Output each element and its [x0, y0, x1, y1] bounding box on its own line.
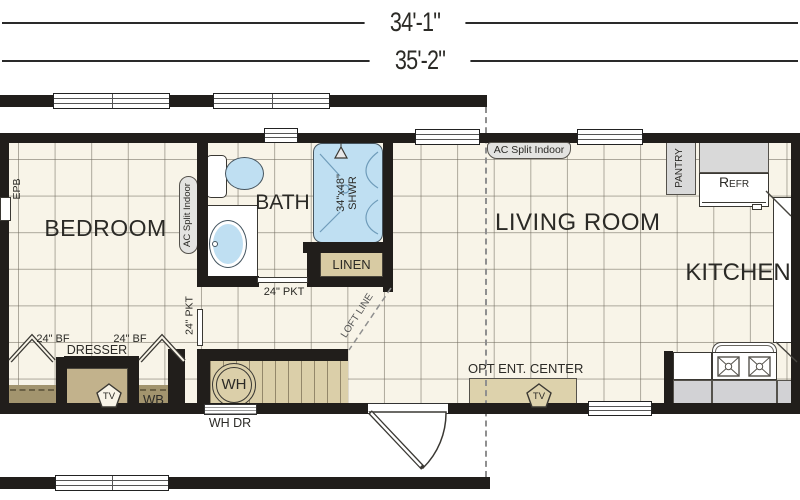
- living-room-label: LIVING ROOM: [495, 210, 660, 235]
- tv-living-label: TV: [527, 392, 551, 402]
- cabinet-over-fridge: [699, 142, 769, 173]
- water-heater-label: WH: [212, 377, 256, 393]
- loft-line-vertical: [485, 107, 487, 477]
- water-heater-door-label: WH DR: [200, 417, 260, 430]
- window-bottom: [588, 401, 652, 416]
- shower-label: 34"x48" SHWR: [336, 153, 362, 233]
- epb-label: EPB: [12, 172, 24, 206]
- wardrobe-base-label: WB: [138, 393, 169, 407]
- bifold-right-label: 24" BF: [111, 334, 149, 346]
- epb-box-icon: [0, 197, 11, 221]
- dresser: [66, 368, 128, 408]
- wall-stairs-north: [197, 349, 348, 361]
- ac-split-bedroom-label: AC Split Indoor: [183, 178, 195, 252]
- dresser-label: DRESSER: [58, 344, 136, 357]
- wall-top: [0, 133, 800, 143]
- pocket-door-bedroom-panel: [197, 309, 203, 346]
- closet-rod-left: [10, 389, 54, 391]
- wall-linen-south: [311, 277, 393, 287]
- wall-shower-east: [383, 143, 393, 243]
- pantry-label: PANTRY: [675, 143, 687, 193]
- tv-bedroom-label: TV: [97, 392, 121, 402]
- floor-plan: 34'-1" 35'-2": [0, 0, 800, 500]
- pocket-door-bath-panel: [257, 277, 308, 283]
- closet-rod-right: [140, 389, 166, 391]
- pocket-door-bedroom-label: 24" PKT: [185, 293, 198, 339]
- refrigerator-label: Refr: [699, 175, 769, 190]
- window-bath: [264, 128, 298, 143]
- entry-threshold: [368, 403, 448, 414]
- opt-ent-center-label: OPT ENT. CENTER: [468, 362, 580, 376]
- ac-split-living-label: AC Split Indoor: [487, 145, 571, 156]
- window-living-1: [415, 129, 480, 145]
- pocket-door-bath-label: 24" PKT: [258, 287, 310, 299]
- water-heater-door: [204, 404, 257, 415]
- loft-window-top-1: [53, 93, 170, 109]
- dimension-upper: 34'-1": [365, 7, 466, 37]
- window-living-2: [577, 129, 643, 145]
- wall-dresser-header: [64, 356, 139, 368]
- wall-bedroom-bath: [197, 143, 208, 283]
- toilet-bowl-icon: [225, 157, 264, 190]
- wall-closet-3: [168, 349, 185, 412]
- bedroom-label: BEDROOM: [43, 216, 168, 240]
- bath-label: BATH: [240, 192, 325, 214]
- stove-burner-panel: [712, 352, 777, 380]
- counter-left-of-stove: [673, 352, 712, 380]
- entry-door-icon: [370, 412, 446, 468]
- kitchen-label: KITCHEN: [683, 260, 793, 285]
- toilet-tank-icon: [206, 155, 227, 198]
- wall-kitchen-divider: [664, 351, 673, 413]
- bifold-left-label: 24" BF: [35, 334, 71, 346]
- linen-label: LINEN: [320, 258, 383, 272]
- dimension-lower: 35'-2": [370, 45, 471, 75]
- wall-left: [0, 133, 9, 414]
- sink-drain-icon: [212, 241, 218, 247]
- loft-window-bottom: [55, 475, 169, 491]
- shower-size-label: 34"x48": [335, 174, 347, 212]
- loft-window-top-2: [213, 93, 330, 109]
- wall-stairs-west: [197, 349, 210, 412]
- shower-abbr-label: SHWR: [347, 176, 359, 210]
- wall-bath-south: [197, 276, 259, 287]
